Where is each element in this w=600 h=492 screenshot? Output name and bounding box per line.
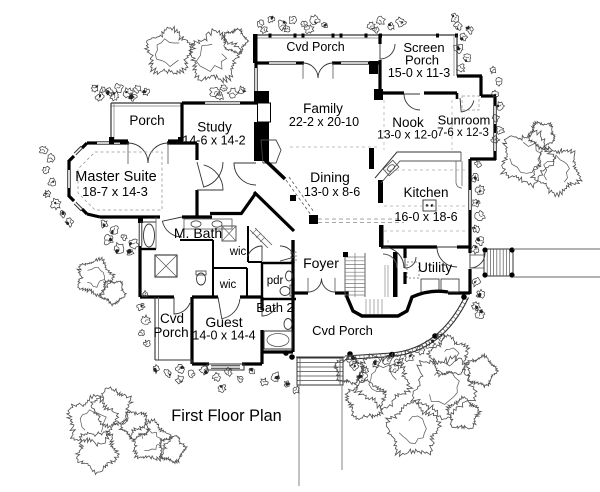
svg-text:Sunroom: Sunroom [438, 113, 491, 128]
svg-text:22-2 x 20-10: 22-2 x 20-10 [289, 115, 359, 129]
svg-text:M. Bath: M. Bath [174, 225, 222, 241]
svg-text:Master Suite: Master Suite [75, 169, 156, 185]
svg-text:First Floor Plan: First Floor Plan [171, 407, 281, 425]
svg-text:Foyer: Foyer [303, 255, 339, 271]
svg-text:16-0 x 18-6: 16-0 x 18-6 [394, 210, 457, 224]
svg-text:wic: wic [229, 246, 247, 258]
svg-text:Porch: Porch [153, 325, 188, 340]
svg-text:14-6 x 14-2: 14-6 x 14-2 [182, 134, 245, 148]
svg-text:13-0 x 8-6: 13-0 x 8-6 [304, 185, 360, 199]
svg-text:Cvd Porch: Cvd Porch [312, 323, 373, 338]
svg-text:15-0 x 11-3: 15-0 x 11-3 [388, 66, 450, 80]
svg-text:7-6 x 12-3: 7-6 x 12-3 [437, 127, 489, 139]
svg-text:Cvd: Cvd [160, 311, 184, 326]
svg-text:Dining: Dining [310, 169, 350, 185]
svg-text:Family: Family [303, 101, 343, 116]
svg-text:18-7 x 14-3: 18-7 x 14-3 [82, 184, 148, 199]
svg-text:Bath 2: Bath 2 [256, 300, 294, 315]
svg-text:13-0 x 12-0: 13-0 x 12-0 [377, 128, 438, 142]
svg-text:Porch: Porch [129, 113, 164, 128]
svg-text:Study: Study [197, 120, 232, 135]
svg-text:pdr: pdr [267, 275, 284, 287]
svg-text:wic: wic [219, 279, 237, 291]
svg-text:Utility: Utility [418, 259, 452, 275]
svg-text:Kitchen: Kitchen [403, 185, 448, 200]
svg-text:Cvd Porch: Cvd Porch [286, 40, 344, 54]
svg-text:14-0 x 14-4: 14-0 x 14-4 [192, 329, 255, 343]
